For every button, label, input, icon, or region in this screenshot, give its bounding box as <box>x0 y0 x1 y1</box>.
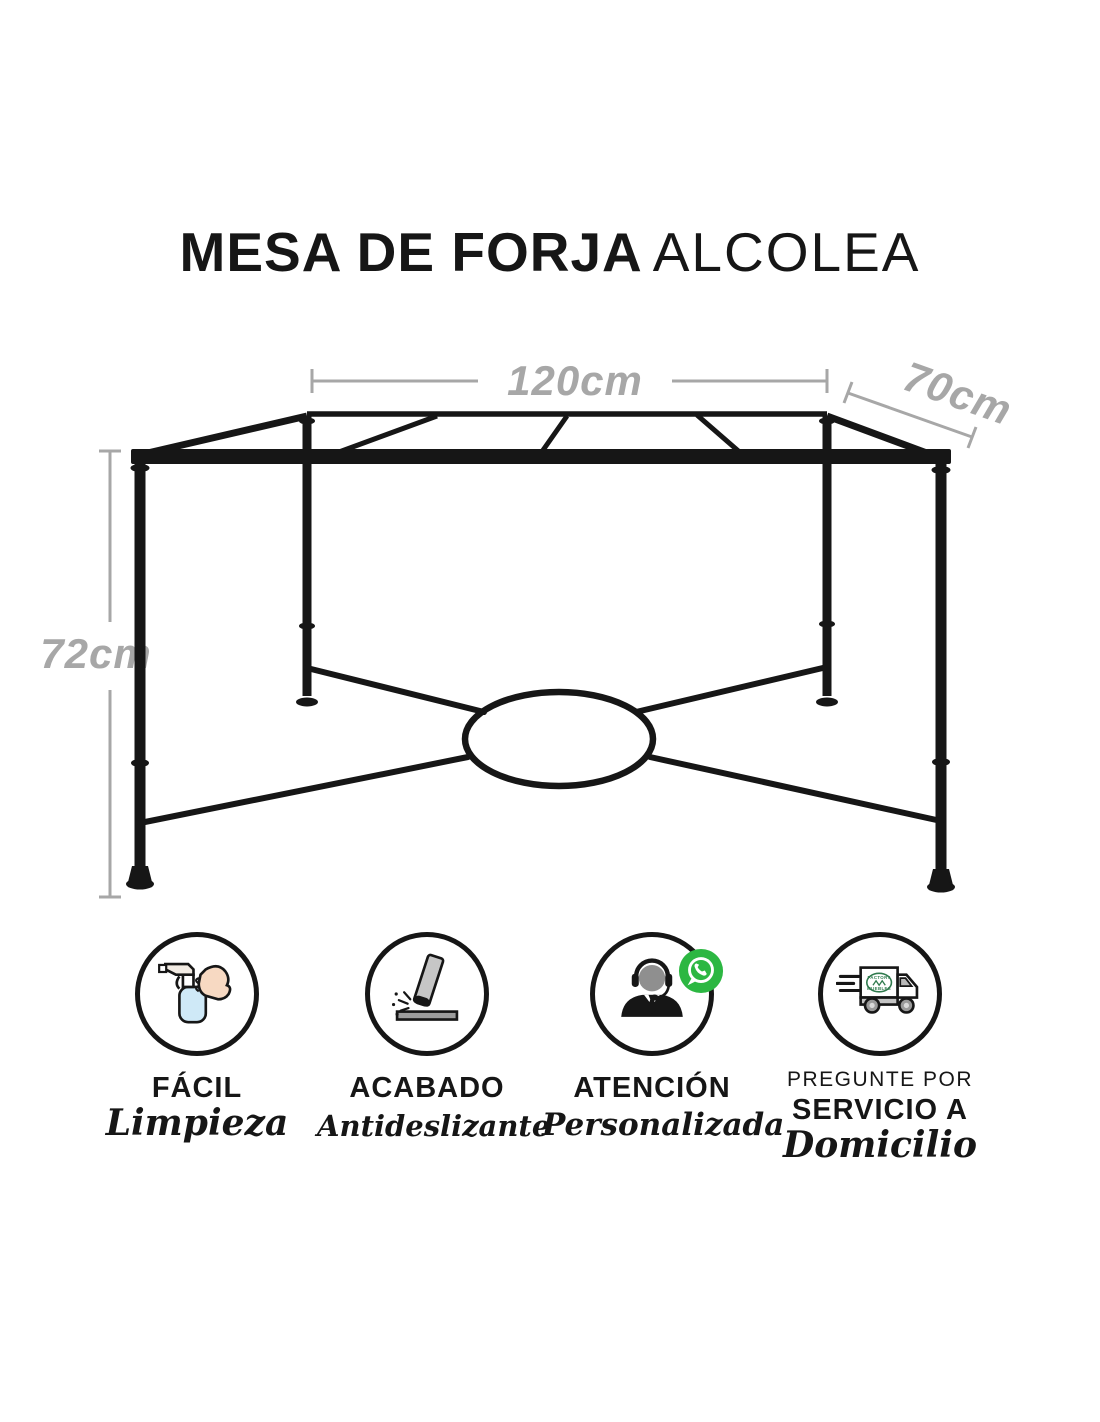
feature-title: SERVICIO A <box>770 1094 990 1127</box>
feature-icon-wrap <box>135 932 259 1056</box>
feature-subtitle: Limpieza <box>87 1105 307 1143</box>
feature-icon-wrap: FACTORY MUEBLES <box>818 932 942 1056</box>
icon-circle <box>135 932 259 1056</box>
delivery-truck-icon: FACTORY MUEBLES <box>836 950 924 1038</box>
feature-title: FÁCIL <box>87 1072 307 1105</box>
feature-pre-title: PREGUNTE POR <box>770 1068 990 1092</box>
table-legs <box>126 416 955 893</box>
icon-circle: FACTORY MUEBLES <box>818 932 942 1056</box>
feature-title: ATENCIÓN <box>542 1072 762 1105</box>
center-ring <box>465 692 653 786</box>
dimension-width-label: 120cm <box>507 357 643 404</box>
feature-card-easy-cleaning: FÁCIL Limpieza <box>87 932 307 1143</box>
spray-bottle-hand-icon <box>153 950 241 1038</box>
feature-icon-wrap <box>590 932 714 1056</box>
feature-subtitle: Antideslizante <box>317 1111 537 1141</box>
truck-logo-top: FACTORY <box>868 975 891 980</box>
dimension-depth-label: 70cm <box>897 353 1018 434</box>
feature-subtitle: Personalizada <box>542 1109 762 1142</box>
feature-card-anti-slip: ACABADO Antideslizante <box>317 932 537 1141</box>
anti-slip-impact-icon <box>383 950 471 1038</box>
feature-subtitle: Domicilio <box>770 1127 990 1165</box>
product-infographic: MESA DE FORJAALCOLEA 120cm 70cm 72cm <box>0 0 1100 1422</box>
feature-icon-wrap <box>365 932 489 1056</box>
feature-card-support: ATENCIÓN Personalizada <box>542 932 762 1142</box>
table-dimension-diagram: 120cm 70cm 72cm <box>0 0 1100 1422</box>
icon-circle <box>365 932 489 1056</box>
feature-title: ACABADO <box>317 1072 537 1105</box>
truck-logo-bottom: MUEBLES <box>867 986 891 991</box>
whatsapp-icon <box>678 948 724 994</box>
feature-card-delivery: FACTORY MUEBLES PREGUNTE POR SERVICIO A … <box>770 932 990 1165</box>
